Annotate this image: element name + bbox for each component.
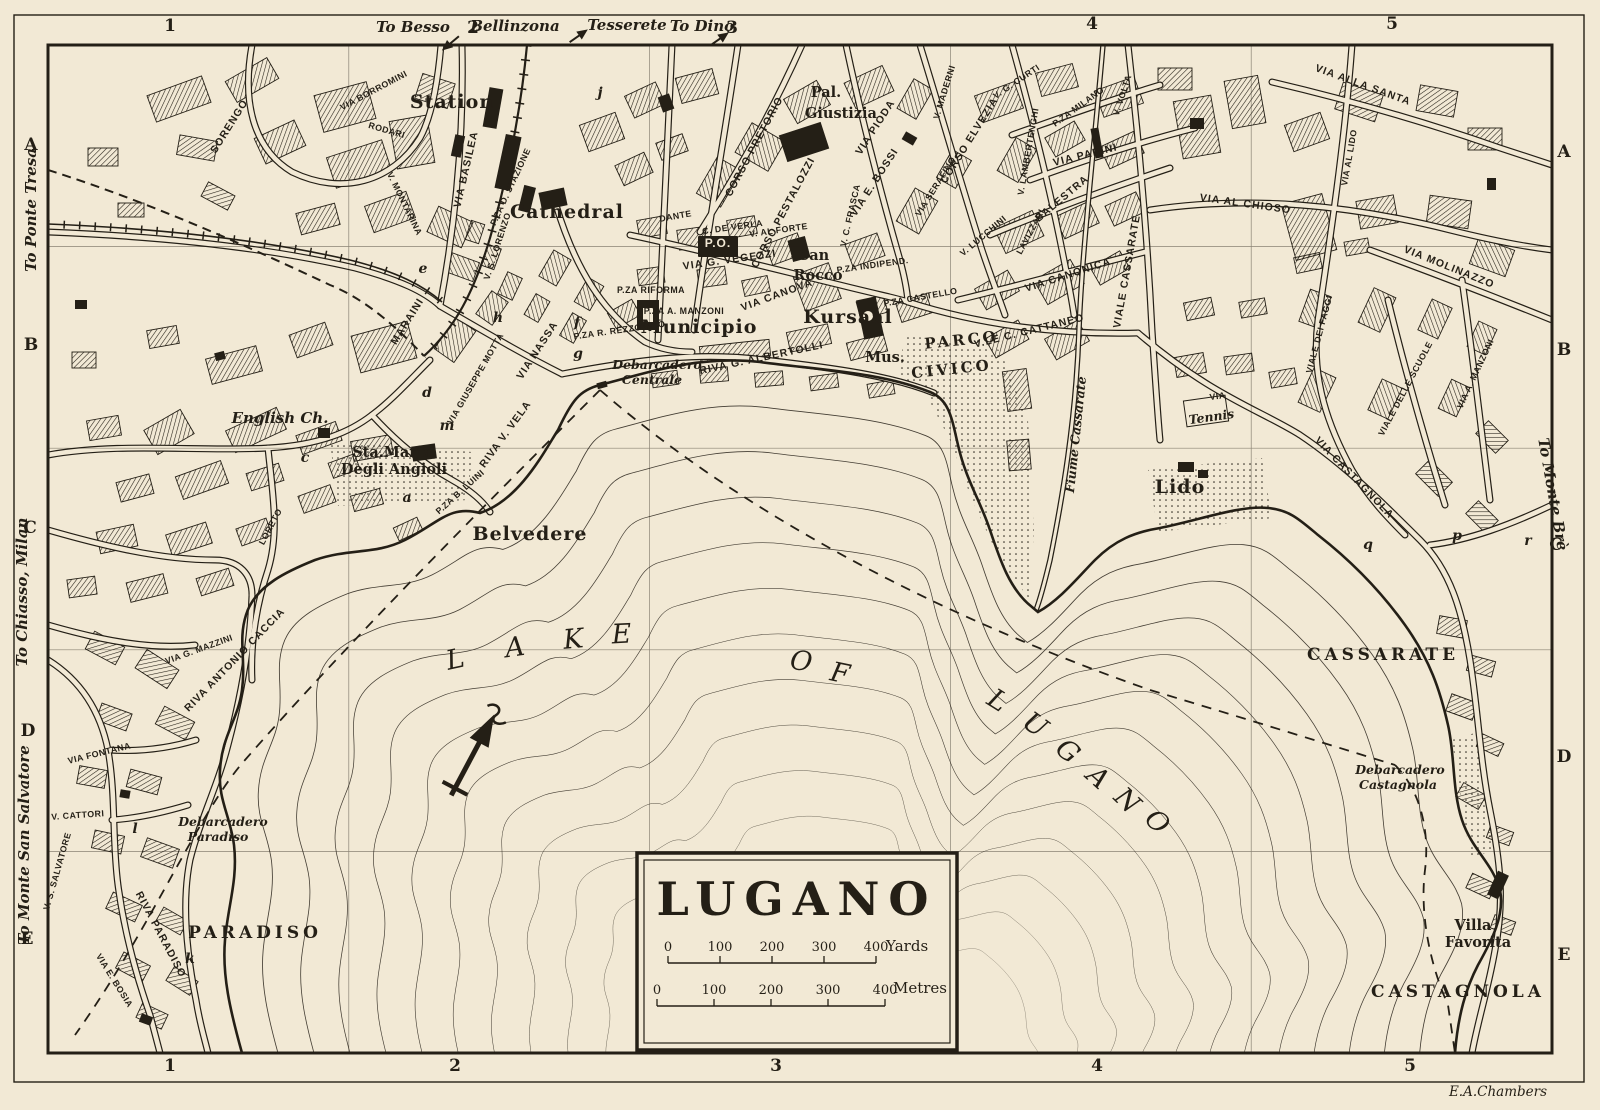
city-block	[1158, 68, 1192, 90]
city-block	[1224, 353, 1254, 375]
label-l: l	[132, 821, 137, 837]
label-station: Station	[410, 91, 494, 113]
label-k: k	[185, 951, 195, 967]
label-cassarate: CASSARATE	[1307, 645, 1459, 665]
label-castagnola: Castagnola	[1359, 777, 1437, 792]
label-paradiso: Paradiso	[187, 829, 249, 844]
label-3: 3	[770, 1056, 782, 1076]
label-to-ponte-tresa: To Ponte Tresa	[22, 148, 40, 272]
map-canvas: LUGANO0100200300400Yards0100200300400Met…	[0, 0, 1600, 1110]
label-b: B	[1557, 340, 1571, 360]
scale-tick-label: 100	[708, 940, 733, 955]
label-centrale: Centrale	[622, 372, 682, 387]
label-o: O	[788, 645, 814, 679]
city-block	[72, 352, 96, 368]
label-villa: Villa	[1454, 917, 1493, 934]
scale-unit-label: Yards	[885, 937, 928, 955]
label-to-monte-san-salvatore: To Monte San Salvatore	[15, 745, 33, 945]
vintage-map-lugano: LUGANO0100200300400Yards0100200300400Met…	[0, 0, 1600, 1110]
city-block	[88, 148, 118, 166]
label-p-za-a-manzoni: P.ZA A. MANZONI	[644, 306, 724, 316]
landmark-building	[119, 789, 130, 799]
label-p-o: P.O.	[705, 236, 731, 250]
label-debarcadero: Debarcadero	[1354, 762, 1445, 777]
landmark-building	[1178, 462, 1194, 472]
label-to-besso: To Besso	[376, 18, 450, 36]
label-san: San	[799, 247, 830, 264]
map-title: LUGANO	[656, 872, 937, 926]
label-belvedere: Belvedere	[473, 523, 588, 545]
label-english-ch: English Ch.	[231, 409, 329, 427]
city-block	[118, 203, 144, 217]
label-1: 1	[164, 1056, 176, 1076]
label-b: B	[24, 335, 38, 355]
label-c: c	[301, 450, 310, 466]
label-a: A	[1556, 142, 1571, 162]
scale-tick-label: 200	[759, 983, 784, 998]
label-lido: Lido	[1155, 476, 1206, 498]
label-paradiso: PARADISO	[188, 923, 322, 943]
label-e: e	[419, 261, 428, 277]
label-h: h	[493, 310, 503, 326]
label-kursaal: Kursaal	[803, 306, 892, 328]
label-d: D	[1557, 747, 1572, 767]
scale-tick-label: 100	[702, 983, 727, 998]
label-giustizia: Giustizia	[805, 105, 878, 122]
label-2: 2	[449, 1056, 461, 1076]
label-5: 5	[1386, 14, 1398, 34]
title-cartouche: LUGANO0100200300400Yards0100200300400Met…	[637, 853, 957, 1050]
label-q: q	[1363, 537, 1373, 553]
label-5: 5	[1404, 1056, 1416, 1076]
label-pal: Pal.	[811, 84, 841, 101]
label-sta-maria: Sta.Maria	[352, 444, 432, 461]
label-castagnola: CASTAGNOLA	[1371, 982, 1545, 1002]
label-1: 1	[164, 16, 176, 36]
label-4: 4	[1091, 1056, 1103, 1076]
label-p-za-riforma: P.ZA RIFORMA	[617, 285, 685, 295]
scale-unit-label: Metres	[893, 979, 947, 997]
landmark-building	[1487, 178, 1496, 190]
label-d: D	[21, 721, 36, 741]
label-m: m	[440, 418, 455, 434]
scale-tick-label: 0	[664, 940, 672, 955]
label-bellinzona: Bellinzona	[469, 17, 559, 35]
label-debarcadero: Debarcadero	[611, 357, 702, 372]
scale-tick-label: 300	[812, 940, 837, 955]
city-block	[67, 576, 97, 598]
label-mus: Mus.	[865, 349, 905, 366]
landmark-building	[75, 300, 87, 309]
city-block	[1007, 439, 1032, 471]
label-a: a	[402, 490, 411, 506]
label-d: d	[422, 385, 432, 401]
label-to-dino: To Dino	[670, 17, 734, 35]
label-e: E	[1558, 945, 1571, 965]
label-tesserete: Tesserete	[587, 16, 666, 34]
label-g: g	[573, 346, 583, 362]
label-to-chiasso-milan: To Chiasso, Milan	[13, 518, 31, 667]
landmark-building	[1190, 118, 1204, 129]
label-p: p	[1452, 528, 1462, 544]
scale-tick-label: 400	[864, 940, 889, 955]
label-e-a-chambers: E.A.Chambers	[1448, 1084, 1547, 1100]
city-block	[754, 371, 783, 387]
city-block	[1002, 369, 1031, 412]
label-4: 4	[1086, 14, 1098, 34]
scale-tick-label: 0	[653, 983, 661, 998]
landmark-building	[318, 428, 330, 438]
label-debarcadero: Debarcadero	[177, 814, 268, 829]
label-cathedral: Cathedral	[510, 201, 624, 223]
label-favorita: Favorita	[1445, 934, 1512, 951]
scale-tick-label: 300	[816, 983, 841, 998]
label-e: E	[610, 619, 633, 651]
label-degli-angioli: Degli Angioli	[341, 461, 448, 478]
scale-tick-label: 200	[760, 940, 785, 955]
